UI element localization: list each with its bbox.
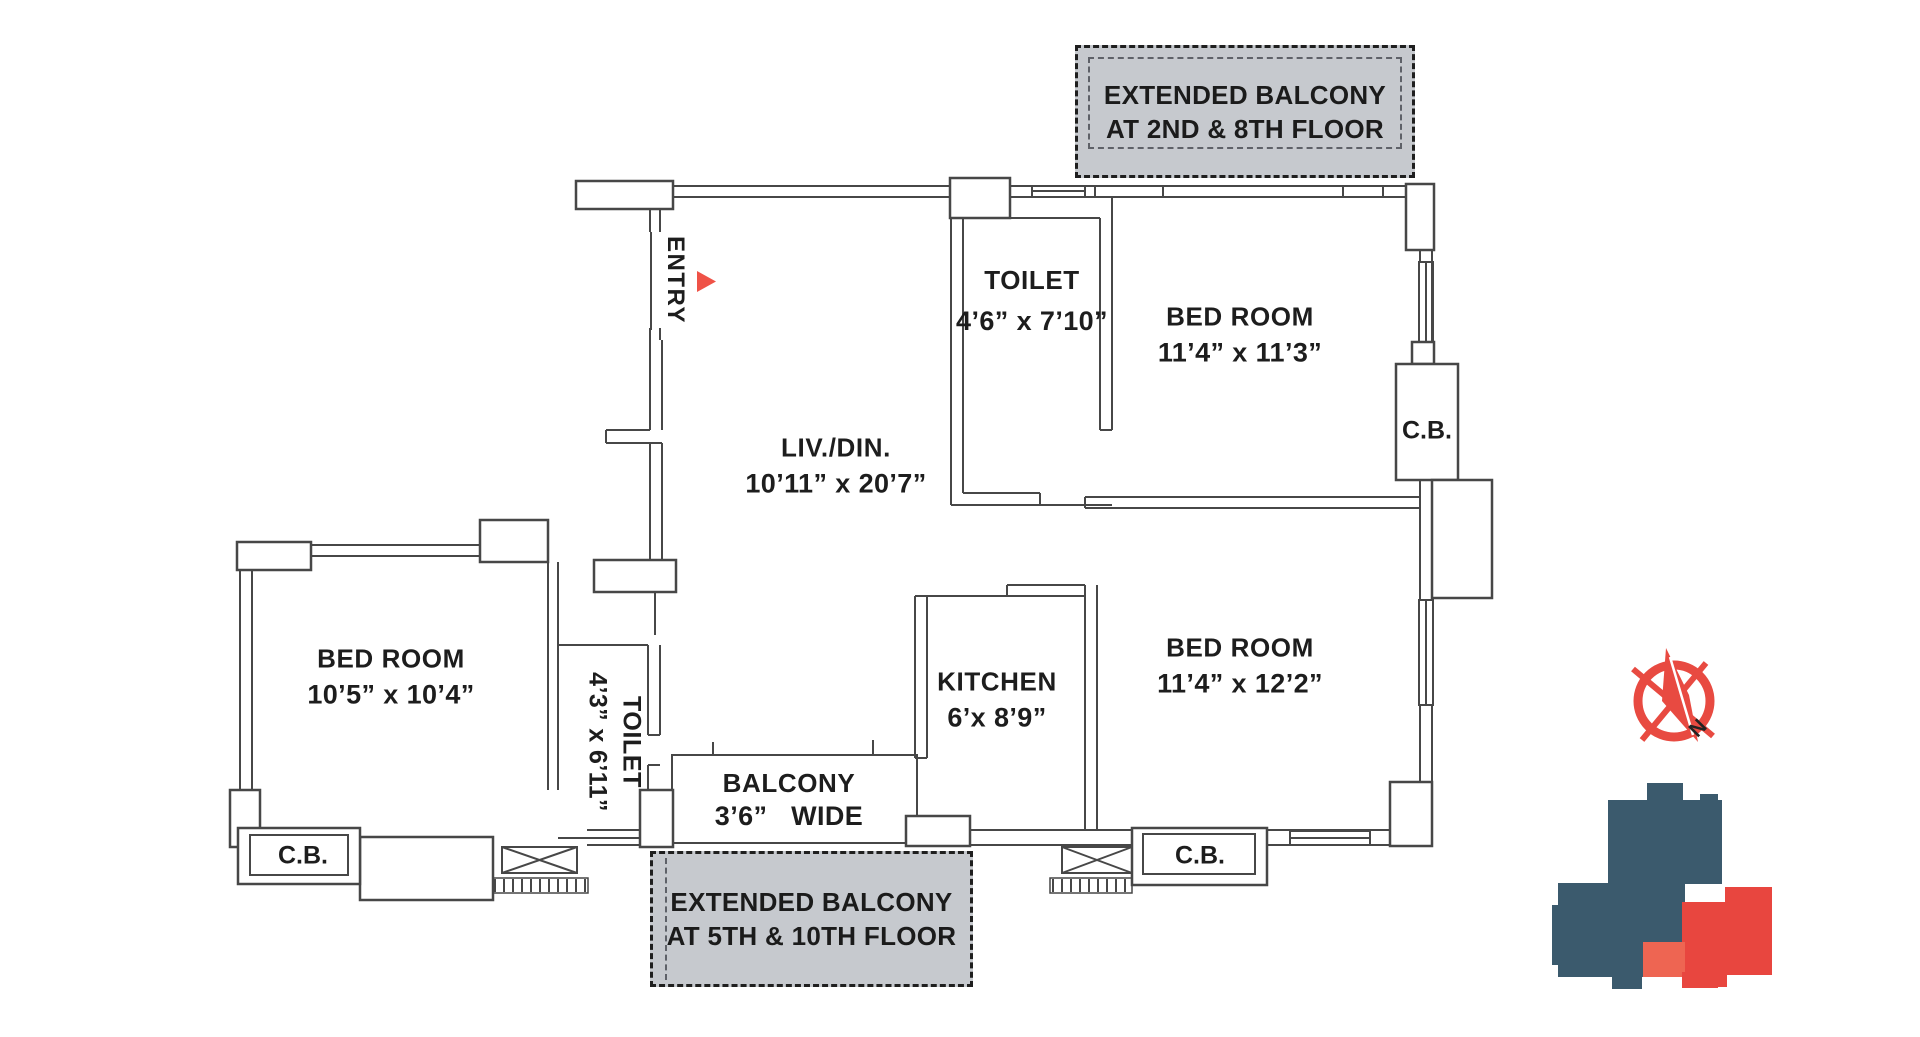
room-label-toilet-top: TOILET 4’6” x 7’10” [956,265,1108,337]
building-logo [1552,783,1772,989]
extended-balcony-bottom: EXTENDED BALCONY AT 5TH & 10TH FLOOR [650,851,973,987]
extended-balcony-bottom-line2: AT 5TH & 10TH FLOOR [667,919,957,953]
room-label-living: LIV./DIN. 10’11” x 20’7” [745,433,926,500]
room-label-bed-bottom-right: BED ROOM 11’4” x 12’2” [1157,633,1323,700]
cb-label-bottom-left: C.B. [278,842,328,871]
entry-label: ENTRY [661,236,689,324]
compass-icon: N [1633,648,1713,742]
room-label-bed-left: BED ROOM 10’5” x 10’4” [307,644,474,711]
extended-balcony-top-line2: AT 2ND & 8TH FLOOR [1106,112,1384,146]
cb-label-bottom-right: C.B. [1175,842,1225,871]
extended-balcony-top-line1: EXTENDED BALCONY [1104,78,1386,112]
room-label-toilet-bottom: TOILET 4’3” x 6’11” [583,672,646,812]
entry-arrow-icon [697,271,716,292]
room-label-bed-top-right: BED ROOM 11’4” x 11’3” [1158,302,1322,369]
cb-label-right: C.B. [1402,417,1452,446]
extended-balcony-bottom-line1: EXTENDED BALCONY [670,885,952,919]
extended-balcony-top: EXTENDED BALCONY AT 2ND & 8TH FLOOR [1075,45,1415,178]
floor-plan-canvas: N EXTENDED BALCONY AT 2ND & 8 [0,0,1920,1037]
room-label-balcony: BALCONY 3’6” WIDE [715,768,863,832]
room-label-kitchen: KITCHEN 6’x 8’9” [937,667,1057,734]
